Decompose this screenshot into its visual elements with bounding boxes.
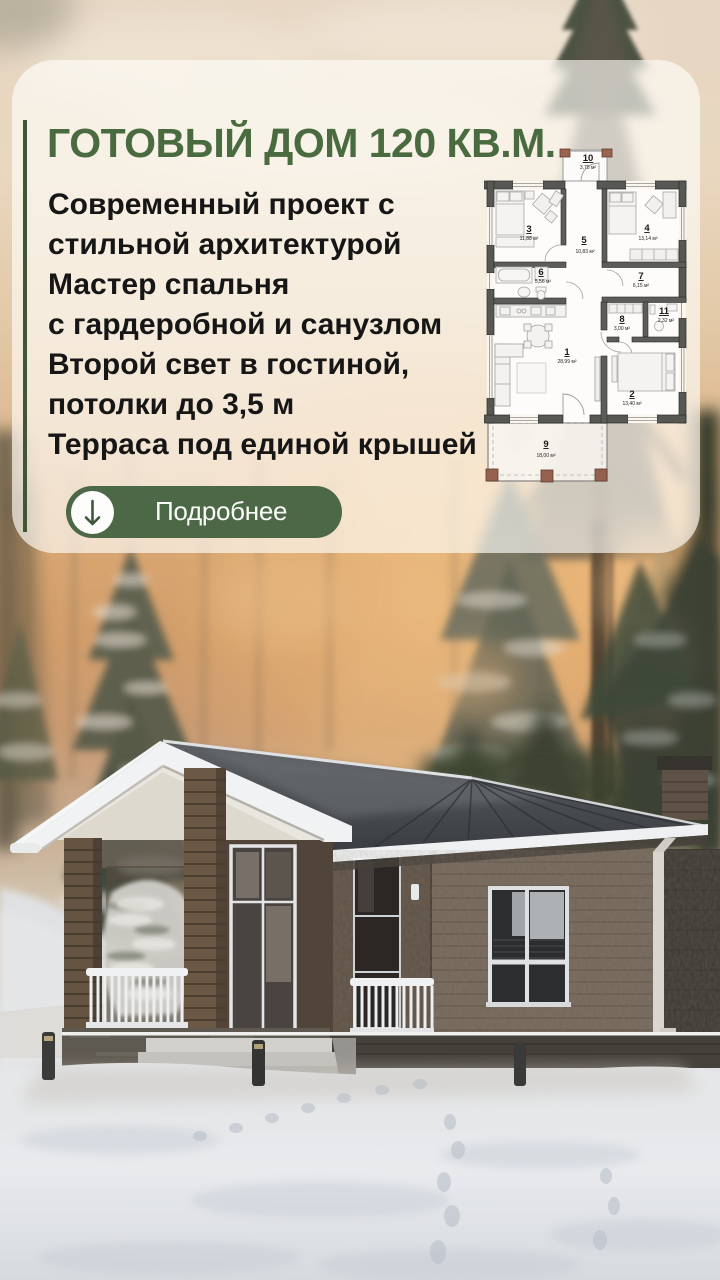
svg-text:28,99 м²: 28,99 м² <box>557 359 576 365</box>
svg-text:5,56 м²: 5,56 м² <box>535 279 552 285</box>
svg-text:3,75 м²: 3,75 м² <box>580 165 597 171</box>
svg-text:18,00 м²: 18,00 м² <box>536 453 555 459</box>
svg-text:13,40 м²: 13,40 м² <box>622 401 641 407</box>
svg-text:11,88 м²: 11,88 м² <box>520 236 539 242</box>
svg-text:3: 3 <box>526 224 531 235</box>
svg-text:10: 10 <box>583 153 594 164</box>
svg-text:9: 9 <box>543 439 548 450</box>
svg-text:8: 8 <box>619 314 624 325</box>
svg-text:6,15 м²: 6,15 м² <box>633 283 650 289</box>
svg-text:2,32 м²: 2,32 м² <box>658 318 675 324</box>
svg-text:7: 7 <box>638 271 643 282</box>
svg-text:2: 2 <box>629 389 634 400</box>
svg-text:6: 6 <box>538 267 543 278</box>
svg-text:11: 11 <box>659 306 670 317</box>
svg-text:5: 5 <box>581 235 587 246</box>
svg-text:10,83 м²: 10,83 м² <box>575 249 594 255</box>
svg-text:3,00 м²: 3,00 м² <box>614 326 631 332</box>
svg-text:4: 4 <box>644 223 650 234</box>
svg-text:13,14 м²: 13,14 м² <box>638 236 657 242</box>
svg-text:1: 1 <box>564 347 570 358</box>
